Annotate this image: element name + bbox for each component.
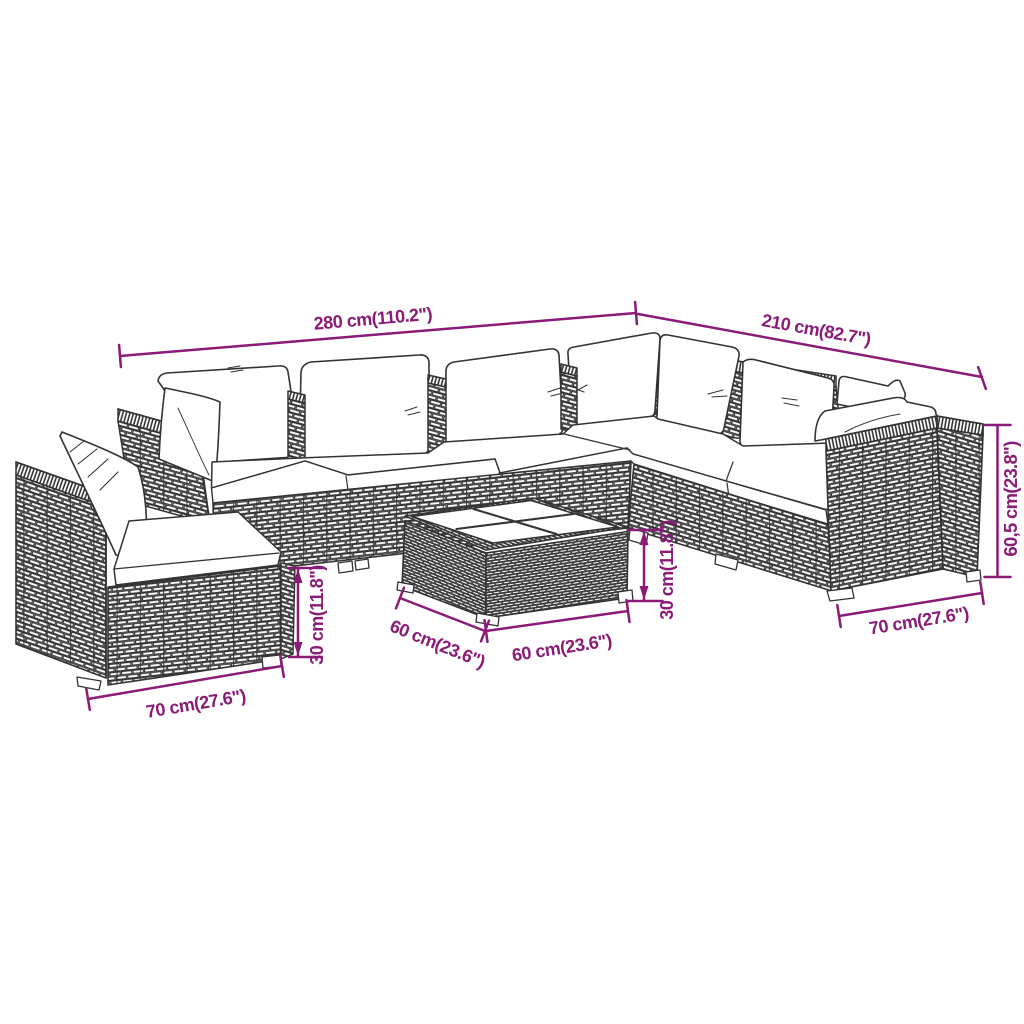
svg-text:60,5 cm(23.8"): 60,5 cm(23.8") <box>1000 441 1021 557</box>
svg-text:30 cm(11.8"): 30 cm(11.8") <box>307 565 327 665</box>
svg-text:30 cm(11.8"): 30 cm(11.8") <box>657 520 677 620</box>
svg-text:70 cm(27.6"): 70 cm(27.6") <box>145 686 248 722</box>
svg-text:280 cm(110.2"): 280 cm(110.2") <box>313 304 433 334</box>
svg-text:210 cm(82.7"): 210 cm(82.7") <box>760 310 872 349</box>
svg-text:60 cm(23.6"): 60 cm(23.6") <box>387 616 488 672</box>
svg-text:60 cm(23.6"): 60 cm(23.6") <box>511 630 614 665</box>
